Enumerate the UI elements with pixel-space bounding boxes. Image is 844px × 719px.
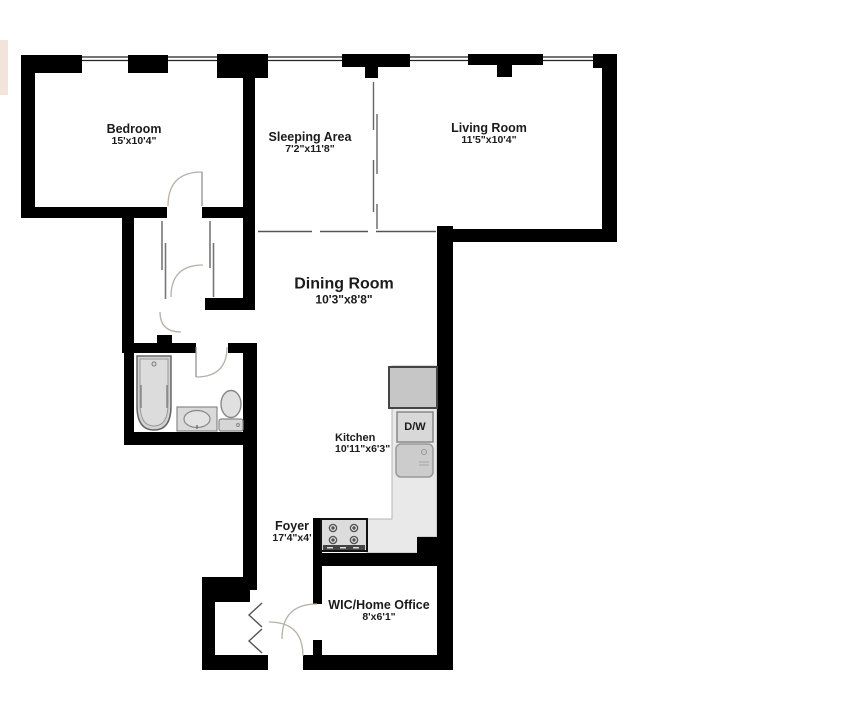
dishwasher-label: D/W	[404, 421, 425, 433]
room-label-kitchen: Kitchen 10'11"x6'3"	[335, 432, 390, 456]
room-label-living-room: Living Room 11'5"x10'4"	[451, 121, 527, 147]
room-label-wic-home-office: WIC/Home Office 8'x6'1"	[328, 598, 429, 624]
wic-home-office-name: WIC/Home Office	[328, 598, 429, 612]
wall-pier-5-stub	[497, 63, 512, 77]
wall-living-bottom	[437, 229, 617, 242]
dining-room-dims: 10'3"x8'8"	[294, 293, 394, 306]
wall-bath-stub	[157, 335, 172, 345]
wall-bottom-right	[303, 655, 453, 670]
wall-right-mid	[437, 226, 453, 670]
wall-window-pier-1	[21, 55, 82, 73]
living-room-dims: 11'5"x10'4"	[451, 135, 527, 147]
room-label-sleeping-area: Sleeping Area 7'2"x11'8"	[269, 130, 352, 156]
bifold-door	[249, 603, 262, 653]
room-label-bedroom: Bedroom 15'x10'4"	[107, 122, 162, 148]
sleeping-living-partition	[374, 82, 378, 229]
room-label-foyer: Foyer 17'4"x4'	[272, 519, 311, 545]
sleeping-area-name: Sleeping Area	[269, 130, 352, 144]
sleeping-area-dims: 7'2"x11'8"	[269, 144, 352, 156]
wall-entry-closet-top	[215, 590, 250, 602]
wall-window-pier-3	[217, 54, 268, 78]
kitchen-sink	[396, 444, 433, 477]
stove-front-dashes	[327, 547, 359, 549]
hall-door-swing	[171, 265, 203, 297]
kitchen-dims: 10'11"x6'3"	[335, 444, 390, 456]
living-room-name: Living Room	[451, 121, 527, 135]
wall-hall-left	[122, 218, 134, 353]
wall-wic-top	[322, 553, 437, 566]
wic-home-office-dims: 8'x6'1"	[328, 612, 429, 624]
wall-pier-4-stub	[365, 65, 378, 78]
wall-bottom-left	[202, 655, 268, 670]
wall-divider-lower	[243, 218, 255, 310]
toilet-bowl	[221, 391, 241, 418]
bathroom-fixtures	[137, 356, 243, 431]
wall-divider-bedroom-sleeping	[243, 70, 255, 218]
wall-bath-bottom	[124, 432, 245, 445]
floor-plan: Bedroom 15'x10'4" Sleeping Area 7'2"x11'…	[0, 0, 844, 719]
foyer-dims: 17'4"x4'	[272, 533, 311, 545]
wall-left	[21, 55, 35, 213]
room-label-dining-room: Dining Room 10'3"x8'8"	[294, 275, 394, 306]
wall-bedroom-bottom-right	[202, 207, 255, 218]
front-door-swing	[269, 622, 303, 656]
bedroom-door-swing	[168, 172, 202, 206]
dining-room-name: Dining Room	[294, 275, 394, 293]
bathroom-door-swing	[196, 347, 227, 377]
bedroom-name: Bedroom	[107, 122, 162, 136]
foyer-name: Foyer	[272, 519, 311, 533]
wall-wic-left-lower	[313, 640, 322, 660]
wic-door-swing	[282, 604, 317, 639]
wall-bedroom-bottom-left	[21, 207, 167, 218]
wall-bath-right	[243, 343, 257, 590]
wall-right-living	[602, 54, 617, 242]
refrigerator	[389, 367, 437, 408]
sliding-closet-doors	[162, 221, 214, 299]
bathtub-inner	[140, 359, 168, 426]
wall-bath-left	[124, 343, 134, 445]
sink-basin	[184, 411, 210, 428]
vestibule-door-swing	[160, 312, 181, 332]
bedroom-dims: 15'x10'4"	[107, 136, 162, 148]
wall-window-pier-2	[128, 55, 168, 73]
